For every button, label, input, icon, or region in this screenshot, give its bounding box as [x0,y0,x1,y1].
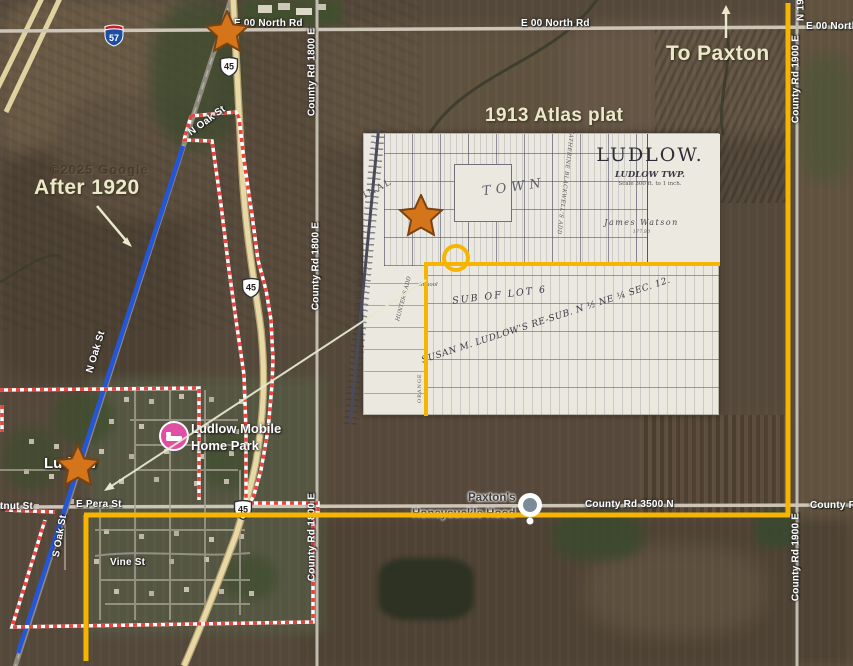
star-marker-ludlow [55,444,101,488]
annotation-atlas-plat: 1913 Atlas plat [485,105,623,127]
poi-pin-icon[interactable] [515,492,547,528]
annotation-overlay [0,0,853,666]
route-highlight-yellow [84,3,790,661]
plat-pointer-line [104,280,426,491]
star-marker-north [204,10,250,54]
annotation-after-1920: After 1920 [34,176,140,200]
to-paxton-arrow [722,5,731,38]
map-canvas[interactable]: E 00 North Rd E 00 North Rd E 00 North N… [0,0,853,666]
pin-inner-circle [523,498,537,512]
pin-anchor-dot [527,518,534,525]
after-1920-arrow [97,206,132,247]
annotation-to-paxton: To Paxton [666,42,770,66]
